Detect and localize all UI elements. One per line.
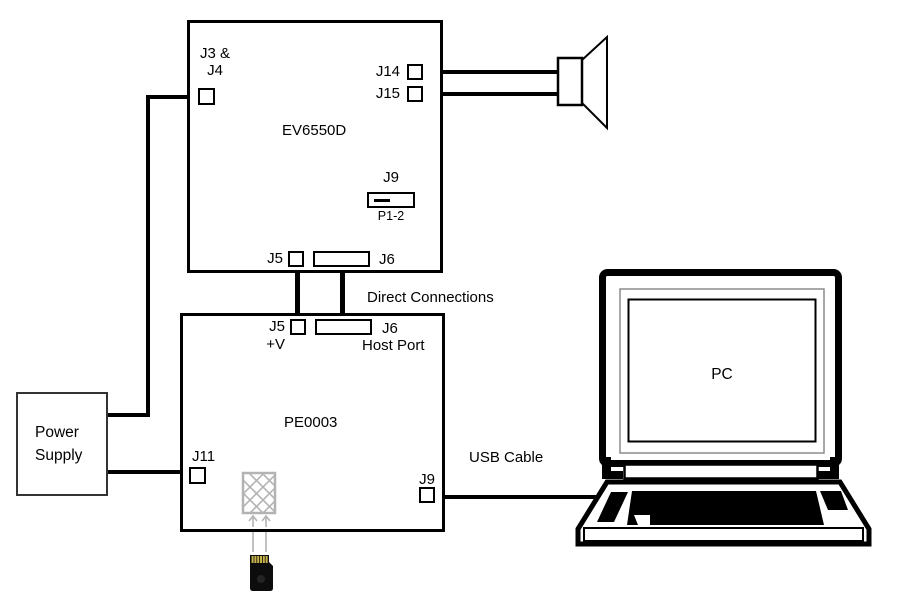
power-supply-label-line1: Power [35, 424, 79, 441]
power-wire-upper-horizontal [106, 413, 150, 417]
sd-slot-hatch-connector [238, 468, 282, 560]
direct-connections-label: Direct Connections [367, 290, 494, 307]
pe0003-j11-connector [189, 467, 206, 484]
ev6550d-j4-connector [198, 88, 215, 105]
ev6550d-j15-label: J15 [372, 86, 400, 103]
usb-cable-label: USB Cable [469, 450, 543, 467]
microsd-card-icon [244, 553, 280, 593]
pe0003-host-port-label: Host Port [362, 338, 425, 355]
ev6550d-j6-label: J6 [379, 252, 395, 269]
pc-label: PC [711, 366, 733, 383]
ev6550d-j14-connector [407, 64, 423, 80]
laptop-keyboard [627, 491, 824, 525]
diagram-canvas: J3 & J4 J14 J15 EV6550D J9 P1-2 J5 J6 Di… [0, 0, 903, 607]
speaker-wire-top [443, 70, 558, 74]
laptop-hinge [625, 465, 818, 479]
power-wire-lower-horizontal [106, 470, 182, 474]
ev6550d-j9-label: J9 [367, 170, 415, 187]
power-supply-label-line2: Supply [35, 447, 82, 464]
ev6550d-j5-connector [288, 251, 304, 267]
speaker-cone [582, 37, 607, 128]
pe0003-plus-v-label: +V [255, 337, 285, 354]
jumper-position-mark [374, 199, 390, 202]
sd-insert-arrows [249, 516, 270, 552]
speaker-wire-bottom [443, 92, 558, 96]
microsd-center-mark [257, 575, 265, 583]
pe0003-j9-connector [419, 487, 435, 503]
power-wire-vertical [146, 95, 150, 417]
ev6550d-j14-label: J14 [372, 64, 400, 81]
speaker-icon [553, 30, 615, 136]
pe0003-j6-connector [315, 319, 372, 335]
pe0003-j5-label: J5 [255, 319, 285, 336]
laptop-front-edge [584, 528, 863, 541]
pe0003-j5-connector [290, 319, 306, 335]
ev6550d-p1-2-label: P1-2 [367, 210, 415, 224]
ev6550d-title: EV6550D [282, 123, 346, 140]
board-link-j5 [295, 271, 300, 315]
power-wire-to-ev-board [148, 95, 187, 99]
ev6550d-j6-connector [313, 251, 370, 267]
ev6550d-j5-label: J5 [253, 251, 283, 268]
board-link-j6 [340, 271, 345, 315]
pe0003-j11-label: J11 [192, 449, 215, 466]
ev6550d-j3-label-line1: J3 & [197, 46, 233, 63]
ev6550d-j9-connector [367, 192, 415, 208]
speaker-driver [558, 58, 582, 105]
pe0003-title: PE0003 [284, 415, 337, 432]
laptop-icon: PC [572, 262, 877, 554]
power-supply-box [16, 392, 108, 496]
ev6550d-j4-label: J4 [197, 63, 233, 80]
ev6550d-j15-connector [407, 86, 423, 102]
pe0003-j6-label: J6 [382, 321, 398, 338]
